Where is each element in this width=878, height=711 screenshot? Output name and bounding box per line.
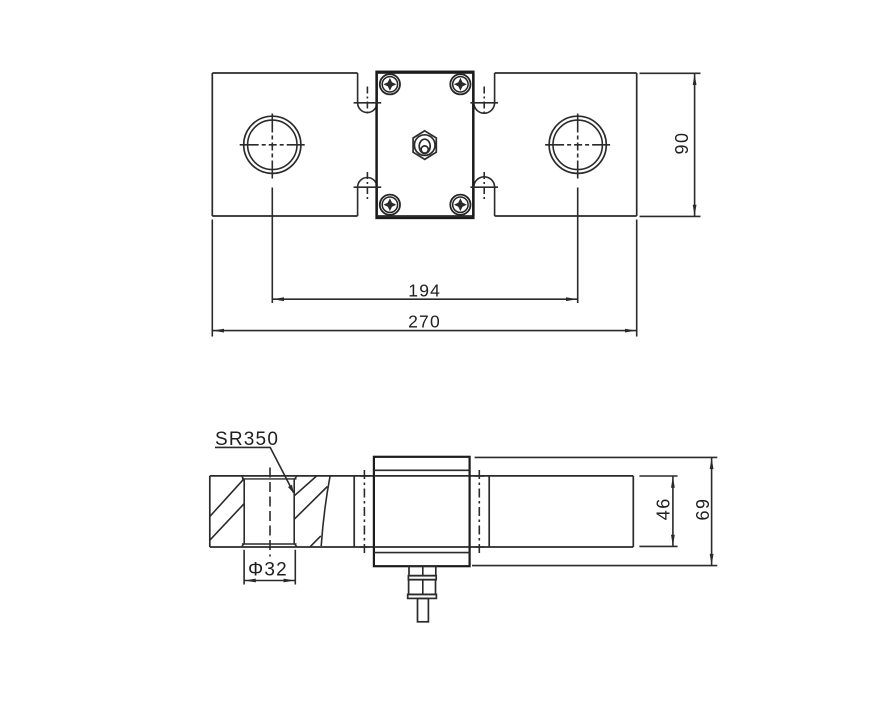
svg-text:90: 90 bbox=[672, 131, 692, 154]
svg-text:46: 46 bbox=[653, 497, 673, 520]
svg-text:194: 194 bbox=[408, 281, 441, 301]
svg-text:Φ32: Φ32 bbox=[248, 560, 288, 581]
svg-text:270: 270 bbox=[408, 312, 441, 332]
svg-text:69: 69 bbox=[693, 497, 713, 520]
